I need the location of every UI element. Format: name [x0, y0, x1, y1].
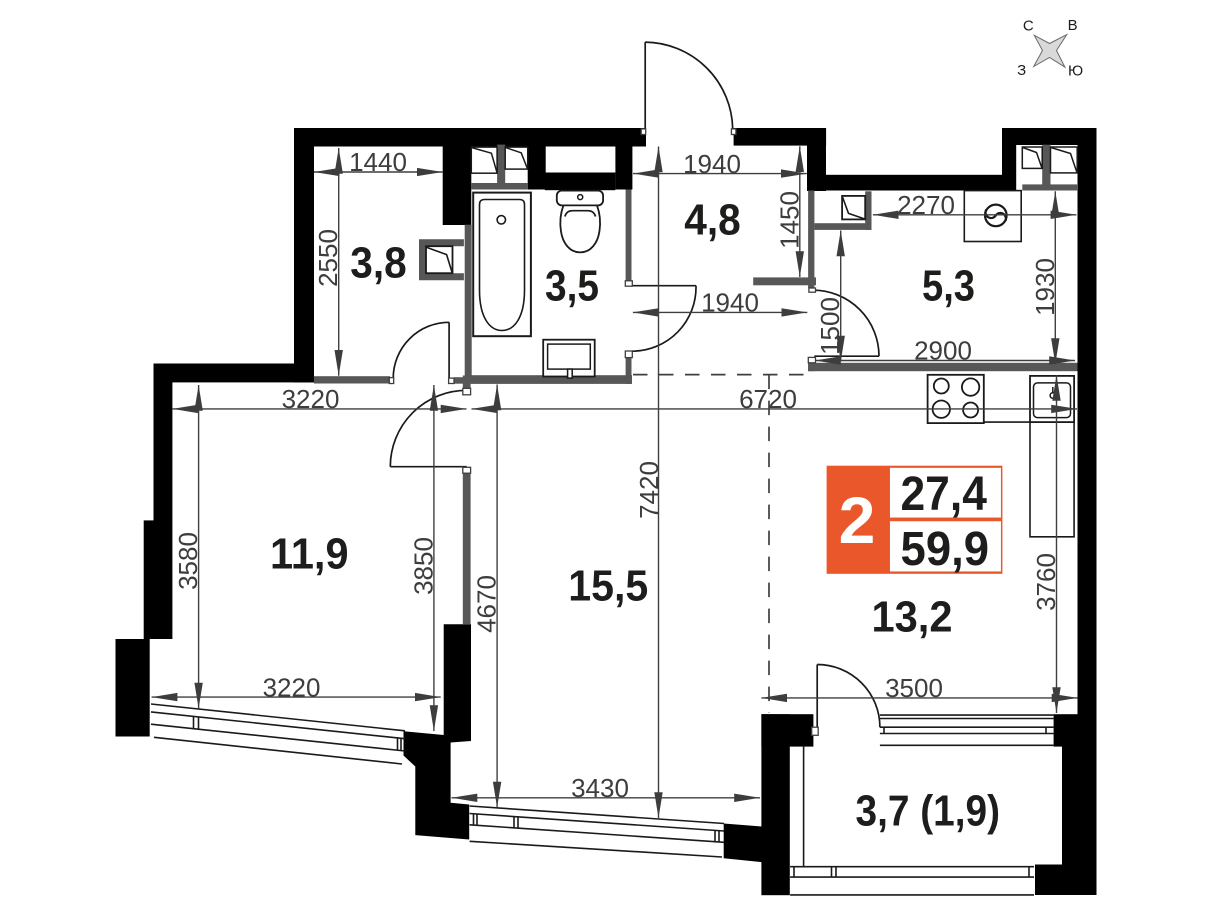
svg-text:4670: 4670	[472, 575, 502, 633]
svg-text:15,5: 15,5	[568, 563, 648, 611]
svg-text:3580: 3580	[173, 532, 203, 590]
svg-text:3220: 3220	[263, 672, 321, 702]
svg-text:3760: 3760	[1031, 553, 1061, 611]
svg-text:1940: 1940	[683, 149, 741, 179]
svg-text:4,8: 4,8	[684, 197, 741, 245]
svg-text:3850: 3850	[408, 537, 438, 595]
svg-text:1500: 1500	[815, 297, 845, 355]
svg-text:2550: 2550	[313, 229, 343, 287]
svg-text:27,4: 27,4	[901, 467, 987, 521]
svg-text:13,2: 13,2	[872, 593, 953, 641]
svg-text:2270: 2270	[897, 190, 955, 220]
svg-text:1450: 1450	[774, 191, 804, 249]
svg-text:11,9: 11,9	[270, 531, 349, 579]
svg-text:В: В	[1068, 17, 1078, 34]
svg-text:2: 2	[839, 483, 876, 557]
svg-text:3220: 3220	[282, 384, 340, 414]
svg-text:59,9: 59,9	[901, 522, 990, 576]
svg-text:7420: 7420	[634, 461, 664, 519]
svg-text:2900: 2900	[914, 336, 972, 366]
svg-text:1940: 1940	[701, 288, 759, 318]
svg-text:5,3: 5,3	[922, 262, 975, 310]
svg-text:Ю: Ю	[1068, 62, 1083, 79]
svg-text:3430: 3430	[571, 773, 629, 803]
svg-text:3,8: 3,8	[350, 239, 407, 287]
svg-text:1930: 1930	[1030, 258, 1060, 316]
svg-text:3,5: 3,5	[545, 262, 599, 310]
svg-text:З: З	[1017, 62, 1026, 79]
svg-text:1440: 1440	[349, 147, 407, 177]
svg-text:6720: 6720	[739, 384, 797, 414]
svg-text:3500: 3500	[885, 673, 943, 703]
svg-text:С: С	[1023, 18, 1034, 35]
svg-text:3,7 (1,9): 3,7 (1,9)	[856, 788, 1001, 836]
